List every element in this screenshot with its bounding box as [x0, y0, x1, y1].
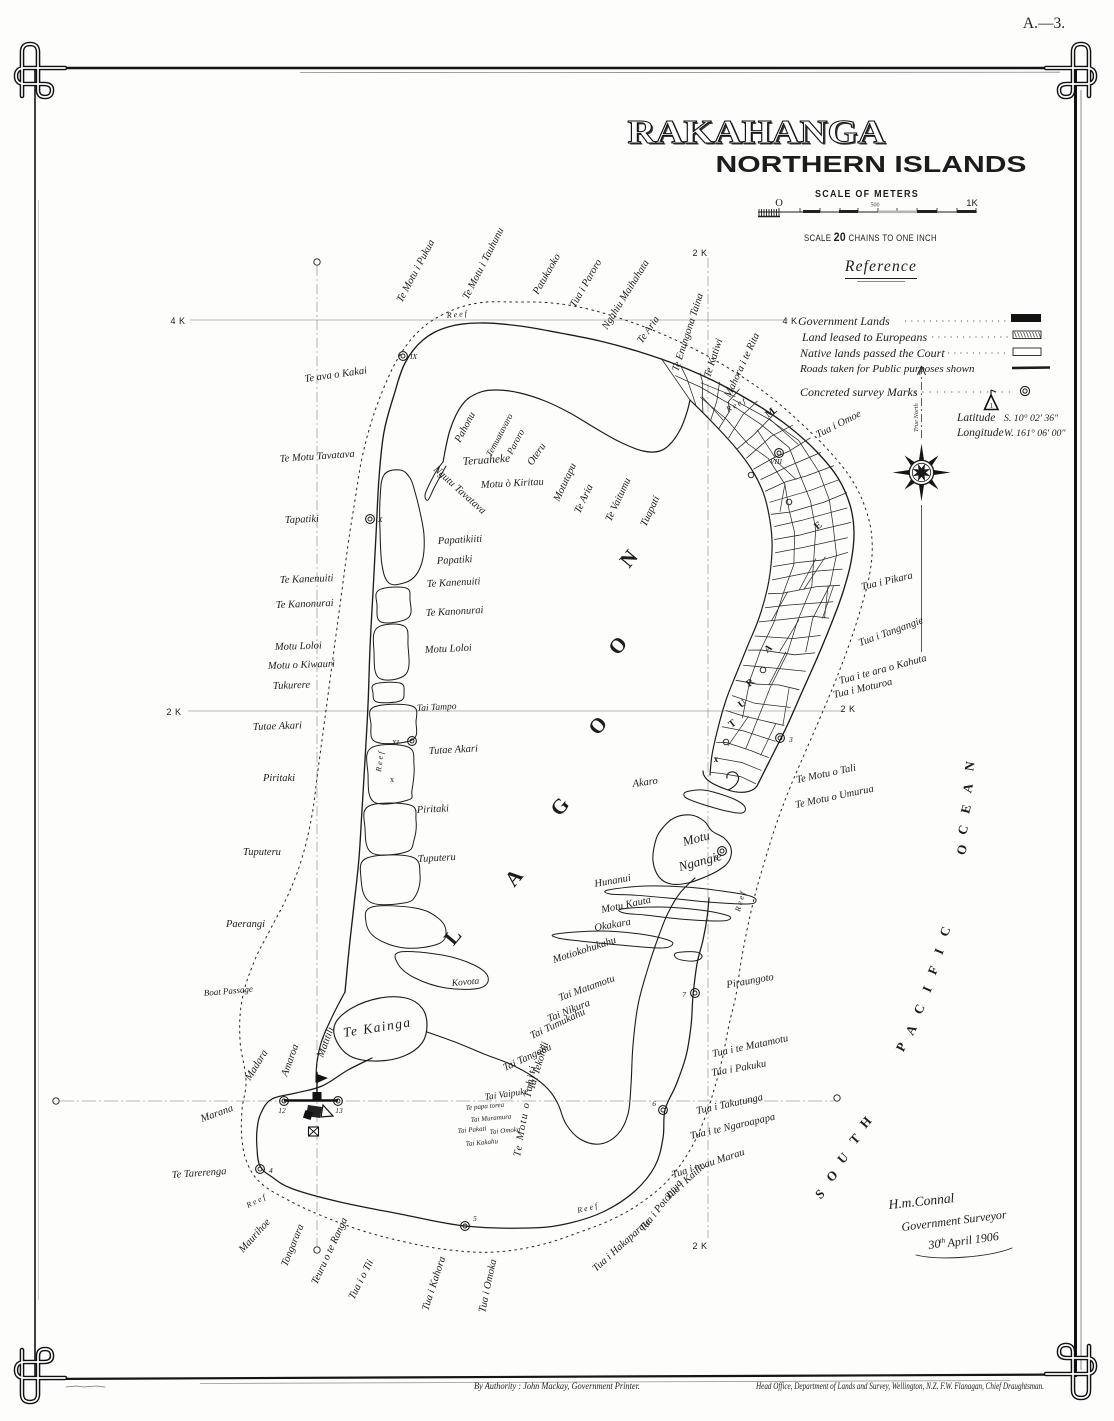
- svg-text:Latitude: Latitude: [956, 412, 995, 424]
- svg-text:Piritaki: Piritaki: [416, 803, 450, 816]
- svg-text:Te Kanenuiti: Te Kanenuiti: [280, 573, 334, 586]
- svg-text:Piritaki: Piritaki: [262, 773, 295, 784]
- svg-text:Government Lands: Government Lands: [798, 314, 890, 328]
- svg-text:2 K: 2 K: [166, 707, 181, 717]
- svg-text:13: 13: [335, 1106, 343, 1115]
- svg-text:Tai Tampo: Tai Tampo: [417, 702, 457, 714]
- svg-text:x: x: [714, 754, 719, 764]
- svg-text:NORTHERN ISLANDS: NORTHERN ISLANDS: [716, 151, 1027, 177]
- svg-text:x: x: [390, 775, 394, 784]
- svg-text:S. 10° 02′ 36″: S. 10° 02′ 36″: [1004, 413, 1059, 424]
- svg-text:2 K: 2 K: [692, 248, 707, 258]
- svg-text:RAKAHANGA: RAKAHANGA: [628, 114, 886, 151]
- svg-text:3: 3: [788, 735, 793, 744]
- svg-text:Tukurere: Tukurere: [273, 680, 311, 692]
- svg-text:Tapatiki: Tapatiki: [285, 514, 319, 526]
- svg-text:4 K: 4 K: [782, 316, 797, 326]
- svg-text:Tutae Akari: Tutae Akari: [253, 720, 303, 733]
- svg-text:Roads taken for Public purpose: Roads taken for Public purposes shown: [799, 363, 975, 375]
- svg-text:Te Kanonurai: Te Kanonurai: [276, 598, 334, 611]
- svg-text:IX: IX: [409, 352, 417, 361]
- svg-text:Land leased to Europeans: Land leased to Europeans: [801, 330, 928, 344]
- svg-text:XI: XI: [391, 738, 400, 747]
- svg-text:Motu Loloi: Motu Loloi: [274, 640, 322, 653]
- svg-text:4 K: 4 K: [170, 316, 185, 326]
- svg-text:5: 5: [473, 1214, 477, 1223]
- svg-text:1K: 1K: [966, 198, 978, 209]
- svg-text:VIII: VIII: [770, 457, 783, 466]
- svg-text:A.—3.: A.—3.: [1023, 15, 1065, 32]
- svg-text:O: O: [775, 198, 783, 209]
- svg-text:Reference: Reference: [844, 258, 917, 275]
- svg-text:Paerangi: Paerangi: [225, 919, 265, 930]
- svg-text:Native lands passed the Court: Native lands passed the Court: [799, 346, 945, 360]
- svg-text:500: 500: [871, 203, 880, 209]
- svg-text:7: 7: [682, 990, 686, 999]
- svg-text:X: X: [377, 515, 383, 524]
- svg-text:1: 1: [990, 402, 994, 410]
- svg-text:By Authority : John Mackay, G: By Authority : John Mackay, Government P…: [474, 1382, 640, 1392]
- svg-text:Papatiki: Papatiki: [436, 554, 473, 567]
- svg-text:Longitude: Longitude: [956, 427, 1004, 439]
- svg-text:Tuputeru: Tuputeru: [418, 852, 456, 865]
- svg-text:Head Office, Department of Lan: Head Office, Department of Lands and Sur…: [755, 1381, 1044, 1391]
- svg-text:W. 161° 06′ 00″: W. 161° 06′ 00″: [1004, 428, 1066, 439]
- svg-text:SCALE 20 CHAINS TO ONE INCH: SCALE 20 CHAINS TO ONE INCH: [804, 230, 937, 244]
- svg-text:2 K: 2 K: [840, 704, 855, 714]
- svg-text:Concreted survey Marks: Concreted survey Marks: [800, 385, 918, 399]
- svg-text:Tuputeru: Tuputeru: [243, 847, 281, 858]
- svg-text:2 K: 2 K: [692, 1241, 707, 1251]
- svg-text:True North: True North: [913, 403, 920, 432]
- svg-text:SCALE OF METERS: SCALE OF METERS: [815, 189, 919, 200]
- svg-text:6: 6: [652, 1099, 656, 1108]
- svg-text:4: 4: [269, 1166, 273, 1175]
- svg-text:12: 12: [278, 1106, 286, 1115]
